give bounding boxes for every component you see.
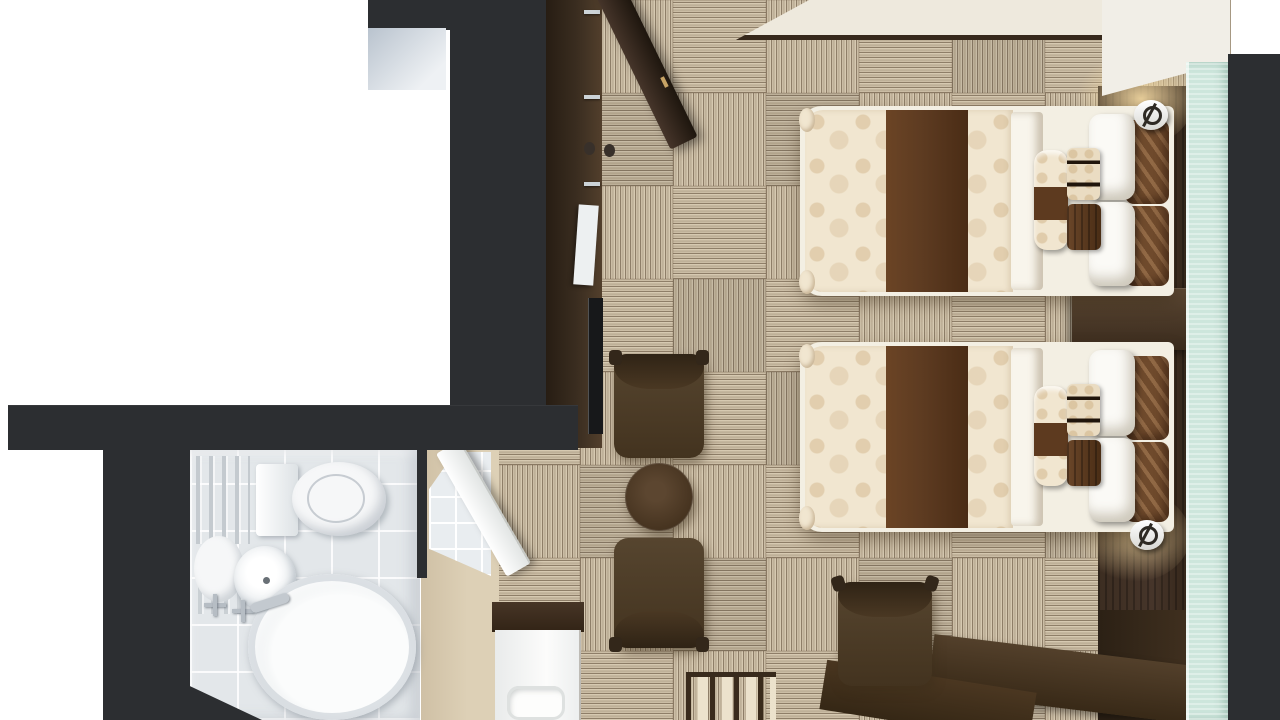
bed-1 — [800, 106, 1174, 296]
nightstand — [1072, 288, 1190, 350]
vanity-counter — [492, 602, 584, 632]
closet-rail — [584, 10, 600, 14]
carpet-tile — [673, 0, 766, 93]
window-curtain — [1186, 62, 1230, 720]
wall — [103, 448, 190, 720]
wall — [1228, 54, 1280, 720]
shower-mixer-icon — [204, 594, 226, 616]
armrest — [696, 350, 709, 365]
toilet-bowl — [292, 462, 386, 536]
wall-shelf-panel — [368, 28, 446, 90]
accent-pillow — [1067, 148, 1100, 200]
closet-rail — [584, 182, 600, 186]
accent-pillow — [1067, 204, 1101, 250]
closet-rail — [584, 95, 600, 99]
armrest — [609, 637, 622, 652]
armrest — [609, 350, 622, 365]
bathroom — [190, 448, 420, 720]
shelf-unit — [573, 204, 599, 285]
vanity-basin — [507, 686, 565, 720]
bolster-pillow — [1034, 150, 1068, 250]
carpet-tile — [673, 186, 766, 279]
wall — [368, 0, 546, 30]
wall — [450, 28, 546, 450]
wardrobe-tv-console — [546, 0, 602, 448]
wall-sconce-lamp — [1134, 98, 1174, 134]
towel-bars-icon — [196, 456, 250, 544]
floor-plan-scene — [0, 0, 1280, 720]
armchair — [614, 354, 704, 458]
bed-2 — [800, 342, 1174, 532]
desk-chair — [838, 582, 932, 686]
round-table — [625, 463, 693, 531]
accent-pillow — [1067, 384, 1100, 436]
armrest — [696, 637, 709, 652]
wall — [417, 448, 427, 578]
wall-sconce-lamp — [1130, 518, 1170, 554]
wall — [8, 405, 578, 450]
bolster-pillow — [1034, 386, 1068, 486]
bed-runner — [886, 110, 968, 292]
luggage-rack — [686, 672, 776, 720]
carpet-tile — [580, 651, 673, 720]
shower-mixer-icon — [232, 600, 254, 622]
armchair — [614, 538, 704, 648]
door-handle-icon — [660, 76, 668, 88]
vanity — [495, 630, 581, 720]
accent-pillow — [1067, 440, 1101, 486]
tv-screen — [588, 298, 603, 434]
slippers — [584, 142, 620, 158]
bed-runner — [886, 346, 968, 528]
